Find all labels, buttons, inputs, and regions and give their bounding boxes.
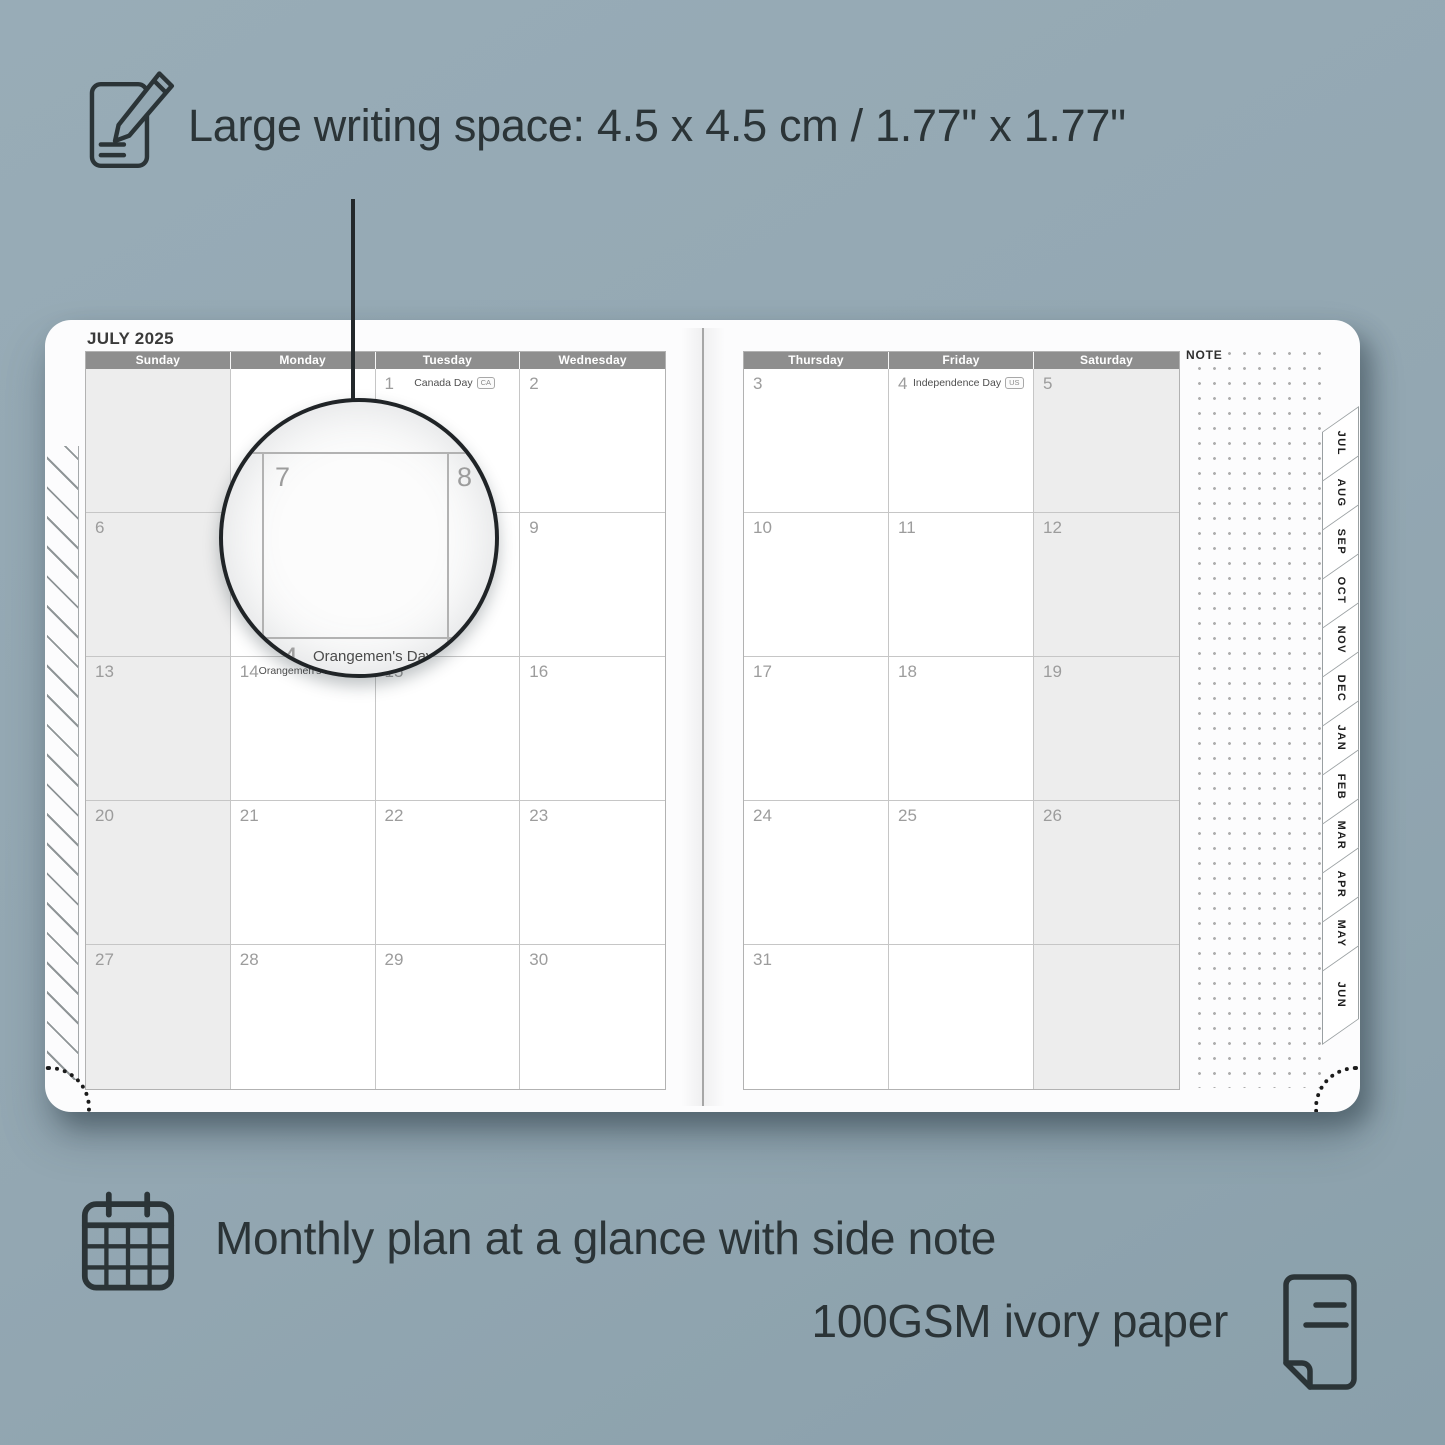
calendar-day-cell: 21 <box>231 801 376 945</box>
day-number: 28 <box>240 951 259 968</box>
calendar-day-cell: 16 <box>520 657 665 801</box>
month-tab-label: MAR <box>1335 821 1347 851</box>
calendar-day-cell: 19 <box>1034 657 1179 801</box>
note-dot-grid-area: NOTE <box>1186 350 1324 1088</box>
pencil-note-icon <box>83 70 179 172</box>
day-number: 13 <box>95 663 114 680</box>
month-title: JULY 2025 <box>87 329 174 349</box>
day-number: 30 <box>529 951 548 968</box>
month-tab-label: SEP <box>1335 529 1347 556</box>
month-tab-label: DEC <box>1335 675 1347 703</box>
calendar-day-cell: 26 <box>1034 801 1179 945</box>
holiday-country-badge: UK <box>472 651 495 666</box>
calendar-day-cell: 10 <box>744 513 889 657</box>
day-number: 14 <box>240 663 259 680</box>
magnifier-pointer-line <box>351 199 355 401</box>
calendar-day-cell: 27 <box>86 945 231 1089</box>
magnified-grid-line <box>262 452 264 637</box>
magnified-holiday-label: Orangemen's Day (n.i.) UK <box>313 648 494 666</box>
day-header: Sunday <box>86 352 231 369</box>
calendar-day-cell: 14Orangemen's Day (n.i.)UK <box>231 657 376 801</box>
calendar-day-cell: 18 <box>889 657 1034 801</box>
day-number: 18 <box>898 663 917 680</box>
month-tab-label: NOV <box>1335 626 1347 654</box>
top-annotation-text: Large writing space: 4.5 x 4.5 cm / 1.77… <box>188 100 1126 152</box>
month-tab-label: JUN <box>1335 982 1347 1009</box>
calendar-day-cell <box>1034 945 1179 1089</box>
day-number: 31 <box>753 951 772 968</box>
day-number: 3 <box>753 375 762 392</box>
bottom-annotation-text-2: 100GSM ivory paper <box>700 1294 1228 1348</box>
calendar-day-cell: 29 <box>376 945 521 1089</box>
calendar-day-cell: 4Independence DayUS <box>889 369 1034 513</box>
month-tab-label: APR <box>1335 871 1347 899</box>
magnified-grid-line <box>223 637 495 639</box>
day-number: 4 <box>898 375 907 392</box>
day-number: 16 <box>529 663 548 680</box>
planner-page-spread: JULY 2025 SundayMondayTuesdayWednesday1C… <box>45 320 1360 1112</box>
calendar-day-cell: 2 <box>520 369 665 513</box>
day-number: 17 <box>753 663 772 680</box>
holiday-country-badge: CA <box>477 377 495 389</box>
month-tab-label: FEB <box>1335 774 1347 801</box>
month-tab-label: MAY <box>1335 920 1347 948</box>
calendar-day-cell: 23 <box>520 801 665 945</box>
day-number: 9 <box>529 519 538 536</box>
calendar-day-cell: 9 <box>520 513 665 657</box>
day-number: 12 <box>1043 519 1062 536</box>
day-number: 5 <box>1043 375 1052 392</box>
calendar-day-cell: 5 <box>1034 369 1179 513</box>
day-number: 29 <box>385 951 404 968</box>
holiday-country-badge: US <box>1005 377 1023 389</box>
magnifier-circle: 7 8 14 Orangemen's Day (n.i.) UK <box>219 398 499 678</box>
day-number: 20 <box>95 807 114 824</box>
day-number: 6 <box>95 519 104 536</box>
calendar-day-cell <box>86 369 231 513</box>
month-tab-label: JUL <box>1335 431 1347 456</box>
month-tab-label: OCT <box>1335 577 1347 605</box>
day-header: Friday <box>889 352 1034 369</box>
day-header: Thursday <box>744 352 889 369</box>
calendar-day-cell: 31 <box>744 945 889 1089</box>
calendar-day-cell <box>889 945 1034 1089</box>
calendar-day-cell: 20 <box>86 801 231 945</box>
day-number: 24 <box>753 807 772 824</box>
calendar-day-cell: 15 <box>376 657 521 801</box>
holiday-label: Independence Day <box>913 377 1001 389</box>
magnified-day-number: 14 <box>265 644 298 674</box>
calendar-grid-right: ThursdayFridaySaturday34Independence Day… <box>743 351 1180 1090</box>
note-label: NOTE <box>1186 348 1228 364</box>
calendar-day-cell: 28 <box>231 945 376 1089</box>
calendar-grid-icon <box>80 1190 176 1294</box>
day-number: 25 <box>898 807 917 824</box>
day-number: 22 <box>385 807 404 824</box>
month-tab-rail: JULAUGSEPOCTNOVDECJANFEBMARAPRMAYJUN <box>1322 420 1359 1032</box>
calendar-day-cell: 30 <box>520 945 665 1089</box>
page-spine <box>702 328 704 1106</box>
day-number: 11 <box>898 519 916 536</box>
day-number: 23 <box>529 807 548 824</box>
magnified-grid-line <box>447 452 449 674</box>
bottom-annotation-text-1: Monthly plan at a glance with side note <box>215 1211 996 1265</box>
paper-sheet-icon <box>1270 1272 1370 1392</box>
calendar-day-cell: 12 <box>1034 513 1179 657</box>
day-number: 2 <box>529 375 538 392</box>
day-header: Wednesday <box>520 352 665 369</box>
day-header: Saturday <box>1034 352 1179 369</box>
calendar-day-cell: 17 <box>744 657 889 801</box>
day-number: 21 <box>240 807 259 824</box>
calendar-day-cell: 13 <box>86 657 231 801</box>
calendar-day-cell: 3 <box>744 369 889 513</box>
calendar-day-cell: 24 <box>744 801 889 945</box>
calendar-day-cell: 6 <box>86 513 231 657</box>
calendar-day-cell: 25 <box>889 801 1034 945</box>
day-number: 19 <box>1043 663 1062 680</box>
magnified-grid-line <box>223 452 495 454</box>
month-tab-label: JAN <box>1335 725 1347 752</box>
magnified-day-number: 8 <box>457 464 472 491</box>
calendar-day-cell: 22 <box>376 801 521 945</box>
calendar-day-cell: 11 <box>889 513 1034 657</box>
magnified-day-number: 7 <box>275 464 290 491</box>
month-tab-label: AUG <box>1335 479 1347 508</box>
holiday-label: Canada Day <box>414 377 472 389</box>
day-number: 10 <box>753 519 772 536</box>
day-number: 26 <box>1043 807 1062 824</box>
left-page-tab-edges <box>47 446 79 1080</box>
day-number: 27 <box>95 951 114 968</box>
day-header: Tuesday <box>376 352 521 369</box>
day-number: 1 <box>385 375 394 392</box>
